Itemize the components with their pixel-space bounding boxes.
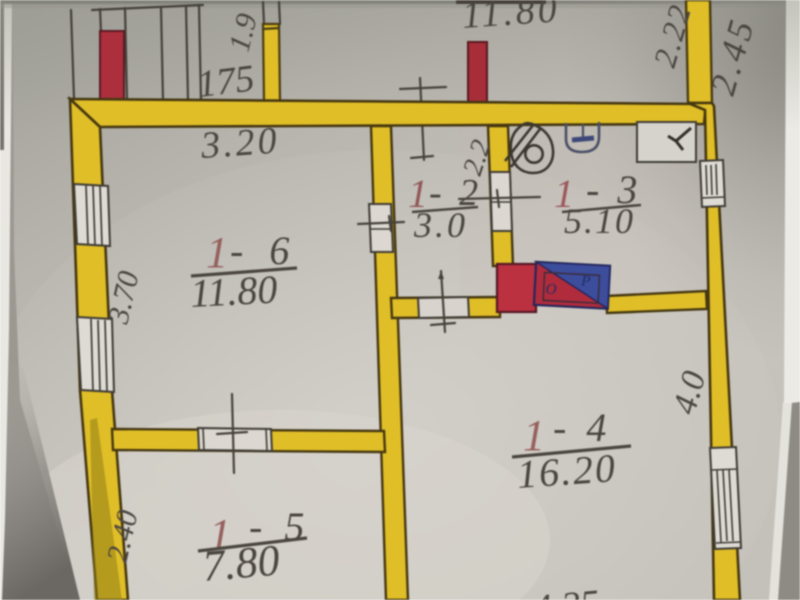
svg-text:P: P	[580, 273, 591, 290]
svg-text:175: 175	[195, 57, 257, 106]
svg-text:5.10: 5.10	[564, 201, 635, 241]
svg-text:16.20: 16.20	[515, 445, 618, 497]
svg-text:O: O	[545, 282, 557, 299]
svg-text:11.80: 11.80	[189, 266, 278, 315]
svg-text:3.20: 3.20	[199, 120, 281, 167]
svg-text:3.0: 3.0	[413, 205, 468, 245]
svg-text:7.80: 7.80	[201, 535, 282, 591]
svg-text:- 4: - 4	[553, 405, 611, 450]
